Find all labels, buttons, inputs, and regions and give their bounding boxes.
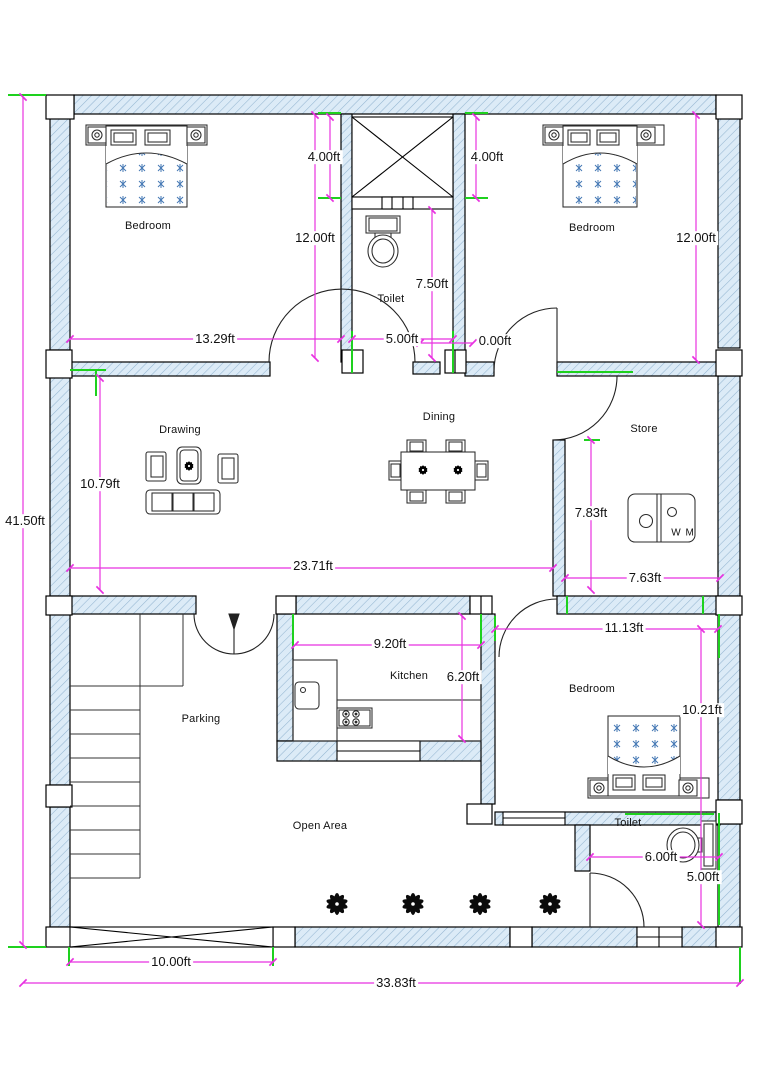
dim-toilet-1-width: 5.00ft — [384, 332, 421, 346]
plant-icon — [538, 893, 561, 915]
dim-store-width: 7.63ft — [627, 571, 664, 585]
bed-icon — [86, 125, 207, 207]
room-label-open-area: Open Area — [293, 820, 347, 832]
dim-bedroom-1-width: 13.29ft — [193, 332, 237, 346]
dim-hall-width: 23.71ft — [291, 559, 335, 573]
floor-plan-canvas: Bedroom Toilet Bedroom Drawing Dining St… — [0, 0, 768, 1087]
stove-icon — [337, 708, 372, 728]
plant-icon — [468, 893, 491, 915]
room-label-toilet-1: Toilet — [378, 293, 405, 305]
dim-plot-width: 33.83ft — [374, 976, 418, 990]
dim-shaft-right: 4.00ft — [469, 150, 506, 164]
plant-icon — [401, 893, 424, 915]
sofa-icon — [146, 490, 220, 514]
room-label-kitchen: Kitchen — [390, 670, 428, 682]
plant-icon — [325, 893, 348, 915]
room-label-bedroom-2: Bedroom — [569, 222, 615, 234]
dining-table-icon — [389, 440, 488, 503]
gate-icon — [70, 927, 273, 947]
room-label-parking: Parking — [182, 713, 221, 725]
sink-icon — [295, 682, 319, 709]
room-label-bedroom-3: Bedroom — [569, 683, 615, 695]
dim-toilet-1-depth: 7.50ft — [414, 277, 451, 291]
dim-shaft-left: 4.00ft — [306, 150, 343, 164]
toilet-2-door — [590, 873, 644, 927]
washing-machine-label: W M — [671, 528, 695, 539]
door-arrow-icon — [229, 614, 239, 629]
room-label-toilet-2: Toilet — [615, 817, 642, 829]
main-door-left — [194, 614, 234, 654]
room-label-dining: Dining — [423, 411, 455, 423]
store-door — [553, 376, 617, 440]
dim-wall-offset: 0.00ft — [477, 334, 514, 348]
dim-gate-width: 10.00ft — [149, 955, 193, 969]
main-door-right — [234, 614, 274, 654]
room-label-drawing: Drawing — [159, 424, 201, 436]
bed-icon — [588, 716, 709, 798]
armchair-icon — [218, 454, 238, 483]
dim-bedroom-3-width: 11.13ft — [603, 621, 646, 635]
dim-bedroom-1-depth: 12.00ft — [293, 231, 337, 245]
dim-kitchen-width: 9.20ft — [372, 637, 409, 651]
stair-shaft-icon — [352, 117, 453, 209]
room-label-store: Store — [630, 423, 657, 435]
dim-toilet-2-depth: 5.00ft — [685, 870, 722, 884]
dim-bedroom-2-depth: 12.00ft — [674, 231, 718, 245]
bedroom-3-door — [499, 599, 557, 657]
toilet-icon — [366, 216, 400, 267]
dim-plot-depth: 41.50ft — [3, 514, 47, 528]
dim-kitchen-depth: 6.20ft — [445, 670, 482, 684]
staircase-icon — [70, 614, 183, 878]
armchair-icon — [146, 452, 166, 481]
bed-icon — [543, 125, 664, 207]
dim-store-depth: 7.83ft — [573, 506, 610, 520]
dim-drawing-depth: 10.79ft — [78, 477, 122, 491]
floor-plan-drawing — [0, 0, 768, 1087]
room-label-bedroom-1: Bedroom — [125, 220, 171, 232]
plants — [184, 461, 561, 915]
dim-toilet-2-width: 6.00ft — [643, 850, 680, 864]
dim-bedroom-3-depth: 10.21ft — [680, 703, 724, 717]
